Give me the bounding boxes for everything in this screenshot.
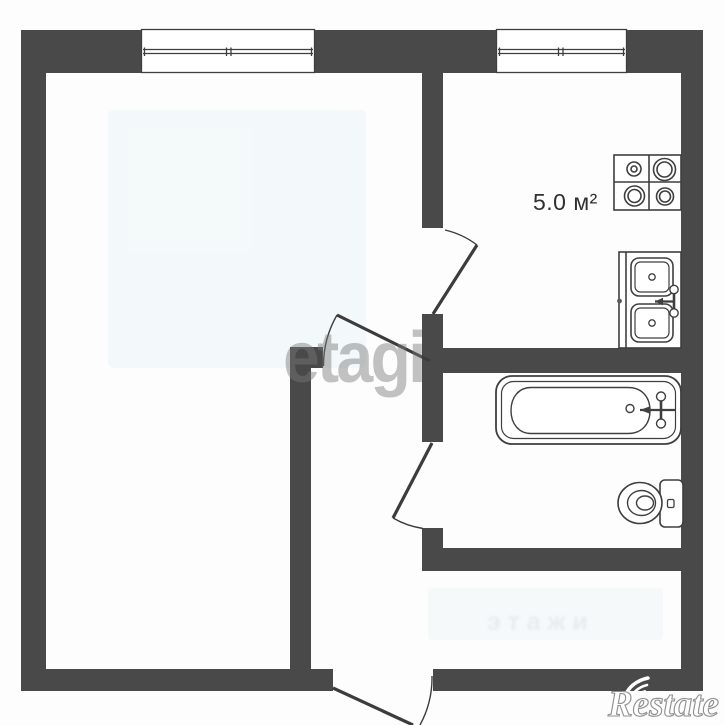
wall-right xyxy=(681,30,703,691)
wall-kitchen-left-upper xyxy=(422,73,443,228)
faint-center-watermark: этажи xyxy=(486,608,596,637)
window-main-room xyxy=(142,30,315,73)
kitchen-sink xyxy=(617,252,681,348)
door-kitchen xyxy=(433,230,477,314)
bathtub xyxy=(496,376,681,444)
wall-bottom-left-of-entrance xyxy=(21,669,333,691)
window-kitchen xyxy=(497,30,627,73)
kitchen-area-label: 5.0 м² xyxy=(533,189,598,216)
door-entrance xyxy=(333,676,432,725)
door-bathroom xyxy=(393,443,432,529)
wall-left xyxy=(21,30,46,691)
wall-kitchen-left-lower xyxy=(422,314,443,442)
toilet xyxy=(618,480,683,527)
floorplan-page: 5.0 м² etagi этажи Restate xyxy=(0,0,725,725)
wall-bathroom-bottom xyxy=(422,548,681,571)
stove xyxy=(614,155,681,210)
restate-logo-watermark: Restate xyxy=(608,686,719,723)
doors xyxy=(323,230,477,725)
toilet-tank xyxy=(660,480,683,527)
wall-room-hallway-divider xyxy=(290,368,311,669)
wall-kitchen-bathroom-divider xyxy=(422,348,681,373)
etagi-watermark: etagi xyxy=(283,322,424,394)
